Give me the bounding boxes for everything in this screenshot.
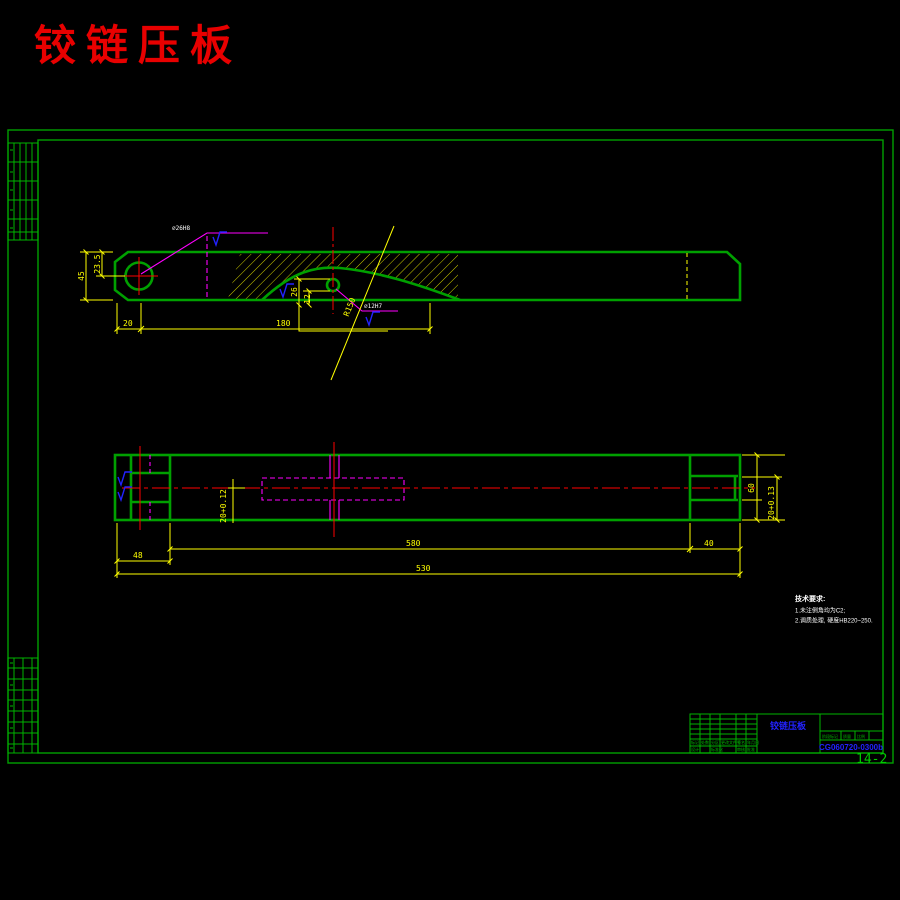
section-hatch [228, 254, 458, 299]
label-weight: 质量 [843, 733, 851, 739]
plan-right-dims: 60 20+0.13 [742, 455, 785, 520]
dim-530: 530 [416, 564, 431, 573]
dim-60: 60 [747, 483, 756, 493]
dim-48: 48 [133, 551, 143, 560]
notes-heading: 技术要求: [795, 596, 895, 604]
dim-580: 580 [406, 539, 421, 548]
hinge-hole-centerlines [120, 257, 158, 295]
label-scale: 比例 [857, 733, 865, 739]
dim-12: 12 [303, 294, 312, 304]
dim-20-013: 20+0.13 [767, 486, 776, 520]
frame-table-top-left [8, 143, 38, 240]
front-bottom-dims: 20 180 [117, 303, 430, 334]
arc-hole-callout-text: ∅12H7 [364, 303, 382, 310]
radius-dimension: R150 [331, 226, 394, 380]
label-check: 审核 [737, 746, 745, 752]
revision-table: 标记 处数 分区 更改文件号 签名 年月日 设计 标准化 审核 批准 [690, 714, 759, 753]
dim-40: 40 [704, 539, 714, 548]
front-view: ∅26H8 ∅12H7 R150 45 [77, 225, 740, 380]
roughness-icon [366, 312, 380, 325]
label-design: 设计 [691, 746, 699, 752]
notes-item: 1.未注倒角均为C2; [795, 608, 887, 615]
part-name: 铰链压板 [770, 720, 807, 731]
dim-45: 45 [77, 271, 86, 281]
drawing-frame [8, 130, 893, 763]
cad-drawing-page: 铰链压板 [0, 0, 900, 900]
title-block-right: 阶段标记 质量 比例 CG060720-0300b [819, 731, 883, 752]
label-zone: 分区 [711, 739, 719, 745]
label-stage: 阶段标记 [822, 733, 838, 739]
dim-180: 180 [276, 319, 291, 328]
drawing-number: CG060720-0300b [819, 743, 883, 752]
notes-item: 2.调质处理, 硬度HB220~250. [795, 618, 887, 625]
plan-slot-left-dim: 20+0.12 [219, 479, 245, 523]
label-standard: 标准化 [711, 746, 723, 752]
label-sign: 签名 [737, 739, 745, 745]
dim-20: 20 [123, 319, 133, 328]
technical-notes: 技术要求: 1.未注倒角均为C2; 2.调质处理, 硬度HB220~250. [795, 596, 895, 625]
dim-20-012: 20+0.12 [219, 489, 228, 523]
label-approve: 批准 [747, 746, 755, 752]
label-count: 处数 [701, 739, 709, 745]
label-date: 年月日 [747, 739, 759, 745]
sheet-number: 14-2 [856, 752, 887, 767]
plan-bottom-dims: 580 40 48 530 [117, 523, 740, 578]
dim-26: 26 [290, 287, 299, 297]
label-mark: 标记 [691, 739, 699, 745]
plan-view: 20+0.12 60 20+0.13 [115, 442, 785, 578]
frame-table-bottom-left [8, 658, 38, 753]
drawing-canvas: ∅26H8 ∅12H7 R150 45 [0, 0, 900, 900]
hole-callout-text: ∅26H8 [172, 225, 190, 232]
title-block: 标记 处数 分区 更改文件号 签名 年月日 设计 标准化 审核 批准 铰链压板 … [690, 714, 883, 753]
hidden-center-slot [262, 478, 404, 500]
roughness-icon [213, 232, 227, 245]
dim-23-5: 23.5 [93, 254, 102, 273]
